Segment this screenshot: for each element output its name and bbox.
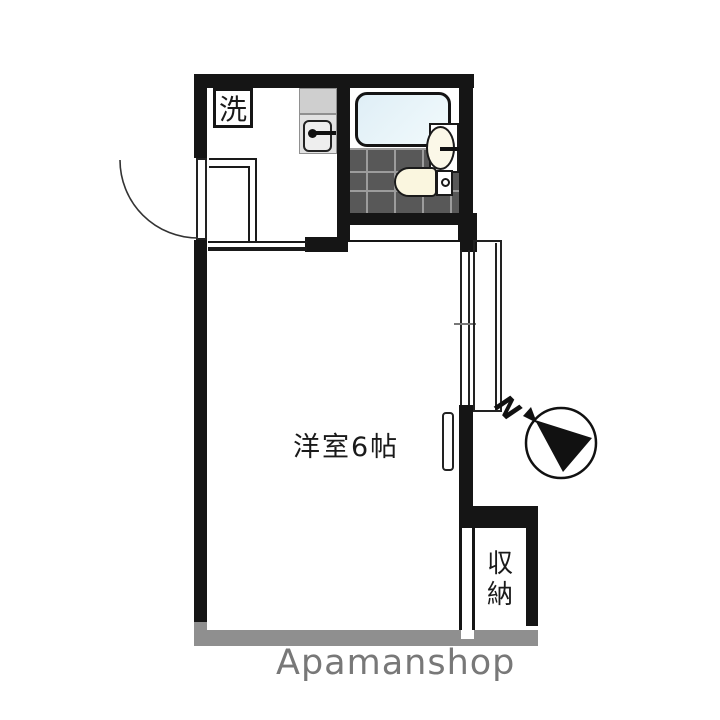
north-label: N xyxy=(490,389,527,427)
laundry-machine-box: 洗 xyxy=(213,88,253,128)
toilet-bowl xyxy=(394,167,437,197)
bathroom-door xyxy=(348,223,460,242)
kitchen-counter xyxy=(299,88,337,114)
watermark-logo: Apamanshop xyxy=(276,643,515,683)
wall-hall-block xyxy=(305,237,350,252)
compass: N xyxy=(490,385,605,490)
washbasin-faucet-icon xyxy=(440,147,459,151)
room-divider-line-thin xyxy=(208,241,307,243)
window-pane-line xyxy=(468,250,470,405)
wall-fixture xyxy=(442,412,454,471)
north-arrow-icon xyxy=(523,407,537,423)
wall-closet-right xyxy=(526,506,538,626)
closet-label: 収納 xyxy=(480,537,516,623)
window-pane-line xyxy=(460,250,462,405)
entrance-door-swing-arc xyxy=(110,150,210,250)
wall-top xyxy=(194,74,474,88)
genkan-partition-line xyxy=(255,158,257,243)
wall-kitchen-bath-divider xyxy=(337,88,350,223)
genkan-partition-line xyxy=(209,158,257,160)
genkan-partition-line xyxy=(248,166,250,243)
toilet-flush-knob xyxy=(441,178,450,187)
laundry-label: 洗 xyxy=(219,88,247,128)
main-room-label: 洋室6帖 xyxy=(293,425,399,464)
wall-bottom-notch xyxy=(461,630,474,639)
kitchen-faucet-icon xyxy=(312,131,336,135)
closet-door-line xyxy=(472,528,475,630)
closet-door-line xyxy=(459,528,462,630)
wall-left-upper xyxy=(194,74,207,158)
kitchen-sink-basin xyxy=(303,120,332,152)
wall-right-mid xyxy=(459,405,473,508)
genkan-partition-line xyxy=(209,166,250,168)
room-divider-line-thick xyxy=(208,247,307,251)
wall-left-lower xyxy=(194,240,207,623)
